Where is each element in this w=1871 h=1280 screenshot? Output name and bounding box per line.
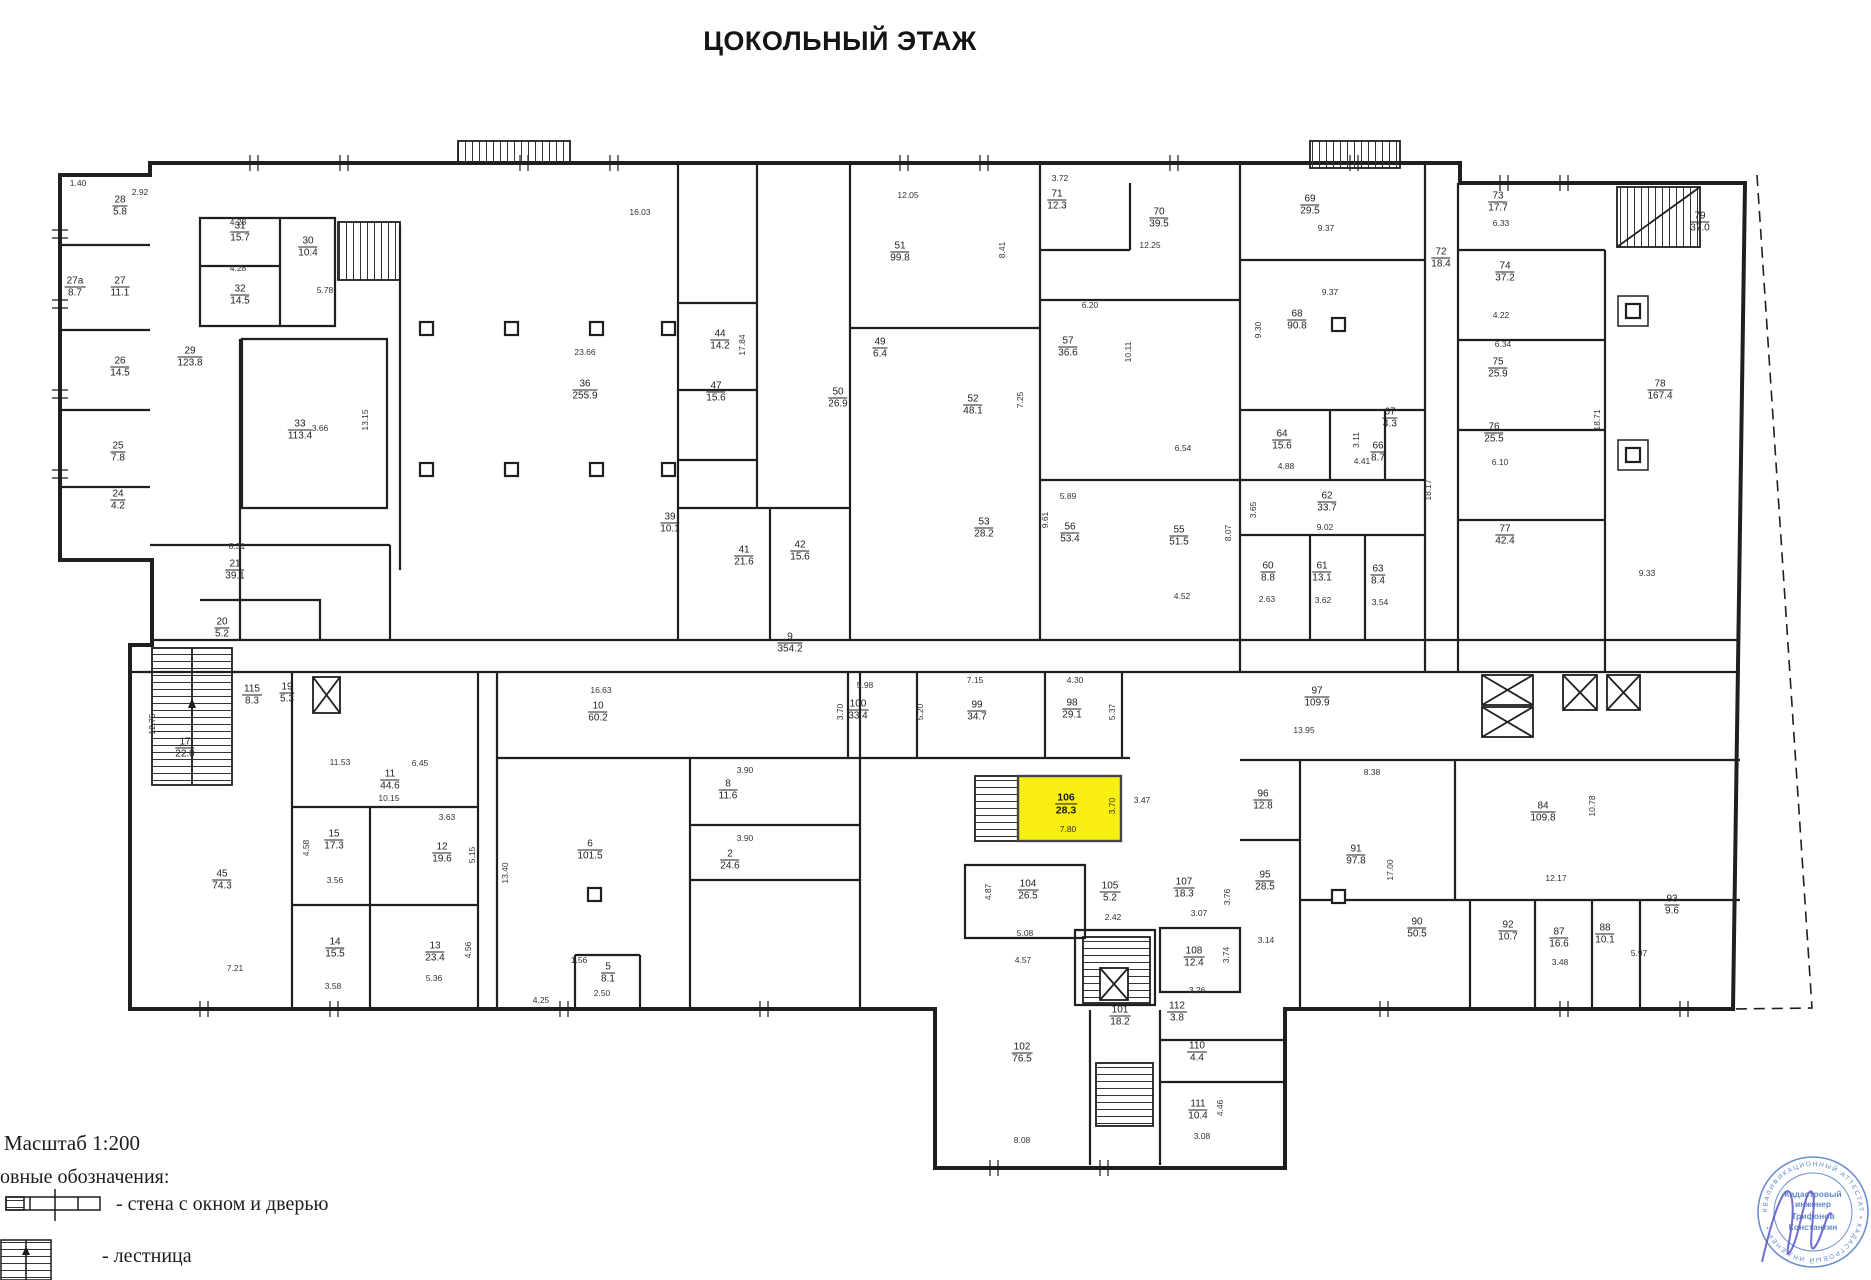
floor-plan-drawing: КВАЛИФИКАЦИОННЫЙ АТТЕСТАТ • КАДАСТРОВЫЙ … — [0, 0, 1871, 1280]
stair-icon — [338, 222, 400, 280]
interior-walls — [60, 163, 1740, 1165]
floor-plan-page: ЦОКОЛЬНЫЙ ЭТАЖ — [0, 0, 1871, 1280]
stair-icon — [1096, 1063, 1153, 1126]
legend-item-stair: - лестница — [102, 1245, 192, 1268]
legend-scale: Масштаб 1:200 — [4, 1131, 140, 1156]
elevator-icon — [1482, 675, 1533, 705]
stair-icon — [1310, 141, 1400, 168]
stair-icon — [458, 141, 570, 163]
elevator-icon — [1482, 707, 1533, 737]
legend-stair-symbol — [1, 1240, 51, 1280]
legend-heading: овные обозначения: — [0, 1166, 169, 1189]
cadastral-stamp: КВАЛИФИКАЦИОННЫЙ АТТЕСТАТ • КАДАСТРОВЫЙ … — [1758, 1157, 1868, 1267]
legend-item-wall: - стена с окном и дверью — [116, 1193, 328, 1216]
highlighted-room-label: 106 28.3 — [1055, 791, 1077, 816]
staircases — [152, 141, 1700, 1126]
highlighted-room-number: 106 — [1055, 791, 1077, 804]
legend-wall-symbol — [6, 1189, 100, 1221]
stair-icon — [975, 776, 1018, 841]
highlighted-room-area: 28.3 — [1056, 805, 1076, 817]
elevator-icon — [1100, 968, 1128, 1000]
outer-walls — [60, 163, 1812, 1168]
elevator-icon — [1563, 675, 1597, 710]
elevator-icon — [1607, 675, 1640, 710]
window-ticks — [52, 155, 1688, 1176]
elevator-icon — [313, 677, 340, 713]
